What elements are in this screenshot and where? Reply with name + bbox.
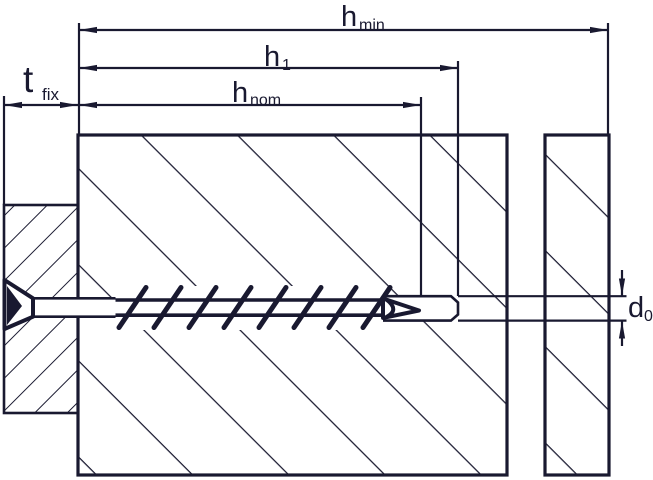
arrow-h1-right bbox=[440, 65, 458, 71]
far-side-block bbox=[545, 135, 609, 475]
label-d0-sub: 0 bbox=[644, 308, 653, 325]
drawing-root bbox=[4, 23, 627, 475]
label-hmin-base: h bbox=[341, 1, 357, 33]
arrow-h1-left bbox=[79, 65, 97, 71]
label-hnom-base: h bbox=[232, 77, 248, 109]
arrow-d0-bottom bbox=[619, 321, 625, 339]
label-hmin-sub: min bbox=[359, 17, 385, 34]
screw-shank-fill bbox=[33, 298, 116, 316]
arrow-tfix-left bbox=[4, 102, 22, 108]
arrow-hmin-right bbox=[590, 27, 608, 33]
label-d0-base: d bbox=[628, 292, 644, 324]
label-h1-base: h bbox=[264, 41, 280, 73]
arrow-hmin-left bbox=[79, 27, 97, 33]
label-h1-sub: 1 bbox=[282, 57, 291, 74]
arrow-hnom-left bbox=[79, 102, 97, 108]
arrow-d0-top bbox=[619, 279, 625, 297]
label-tfix-base: t bbox=[23, 59, 34, 100]
arrow-tfix-right bbox=[60, 102, 78, 108]
label-tfix-sub: fix bbox=[42, 85, 60, 104]
label-hnom-sub: nom bbox=[250, 92, 281, 109]
installation-diagram-page: t fix h min h 1 h nom d 0 bbox=[0, 0, 653, 480]
installation-diagram: t fix h min h 1 h nom d 0 bbox=[0, 0, 653, 480]
arrow-hnom-right bbox=[403, 102, 421, 108]
